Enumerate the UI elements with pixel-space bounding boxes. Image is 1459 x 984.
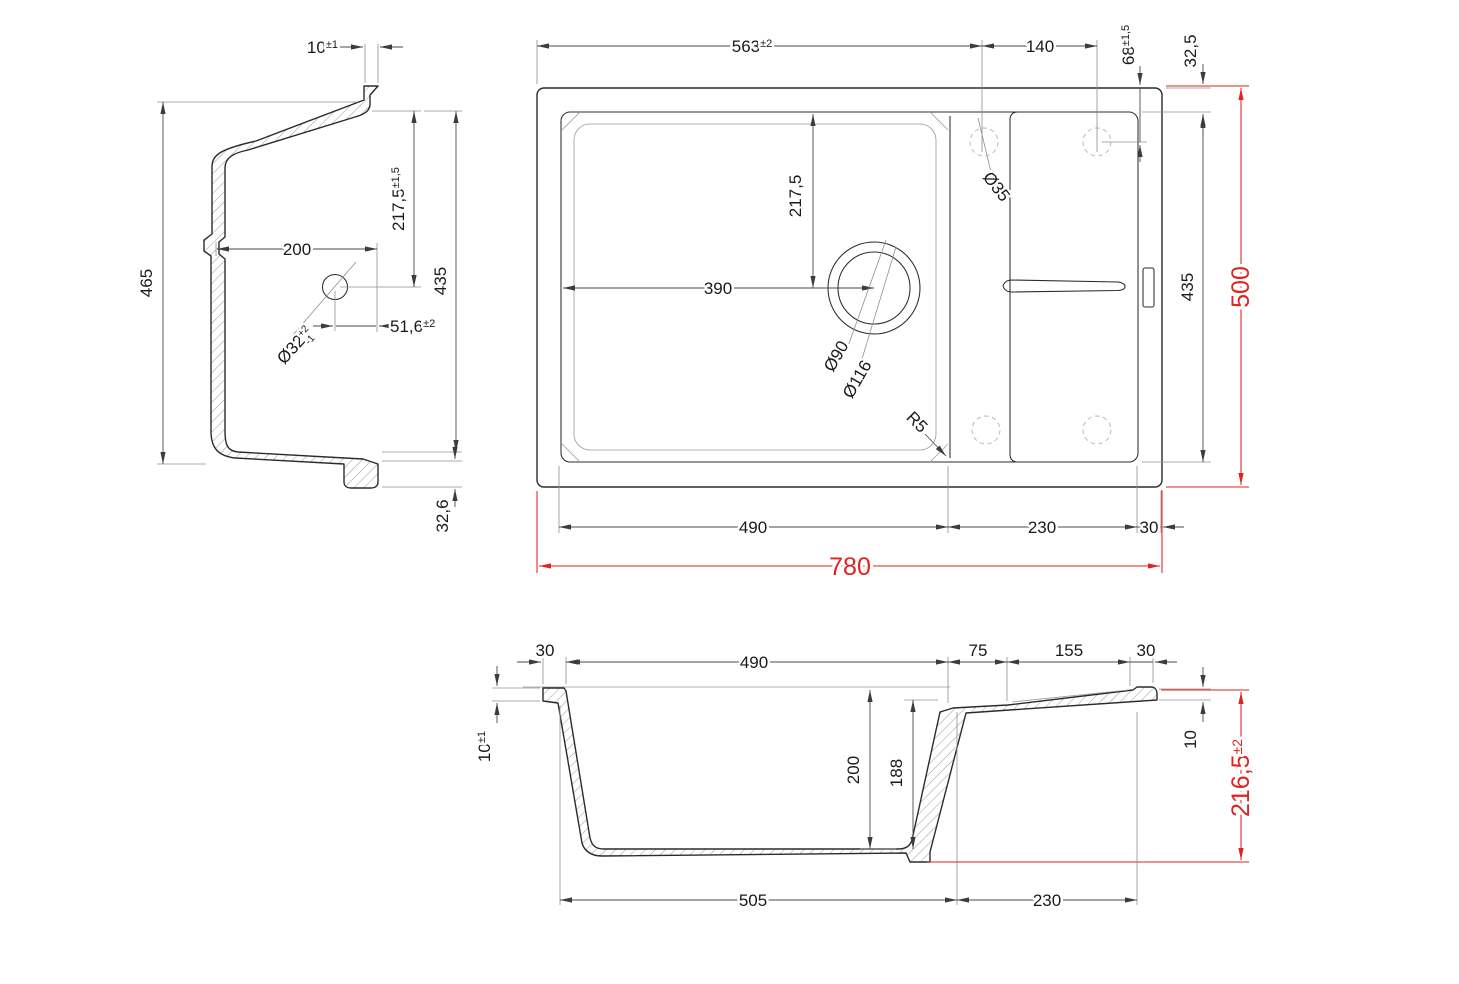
plan-tap-hole xyxy=(1083,416,1111,444)
dim-label: 51,6±2 xyxy=(390,317,435,336)
dim-front-overall-height: 216,5±2 xyxy=(927,690,1255,862)
dim-plan-tap-from-top: 68±1,5 xyxy=(1102,25,1147,162)
front-section-view: 30 490 75 155 30 10±1 xyxy=(475,641,1255,910)
dim-side-bowl-inner: 200 xyxy=(216,240,377,332)
dim-label: Ø35 xyxy=(979,168,1014,205)
dim-front-rim-height: 10±1 xyxy=(475,666,540,762)
dim-label: 563±2 xyxy=(732,37,773,56)
dim-label: 216,5±2 xyxy=(1227,739,1255,817)
dim-front-deck-thickness: 10 xyxy=(1159,667,1211,749)
dim-plan-overall-length: 780 xyxy=(537,490,1162,581)
dim-plan-rim-width-top: 32,5 xyxy=(1142,34,1211,136)
dim-label: 490 xyxy=(740,653,768,672)
dim-plan-drain-from-top: 217,5 xyxy=(786,114,813,288)
plan-overflow-slot xyxy=(1143,268,1154,307)
dim-label: 32,6 xyxy=(433,499,452,532)
dim-label: 230 xyxy=(1033,891,1061,910)
dim-front-bowl-outer-length: 505 xyxy=(560,706,957,910)
dim-label: 500 xyxy=(1227,266,1255,308)
dim-label: 30 xyxy=(1140,518,1159,537)
dim-label: 505 xyxy=(739,891,767,910)
dim-label: 75 xyxy=(969,641,988,660)
dim-label: 188 xyxy=(887,759,906,787)
dim-side-drain-center-depth: 217,5±1,5 xyxy=(340,111,421,287)
dim-plan-tap-hole-diameter: Ø35 xyxy=(978,118,1014,205)
dim-label: 217,5 xyxy=(786,175,805,218)
dim-label: 465 xyxy=(137,269,156,297)
dim-side-drain-hole-diameter: Ø32+2-1 xyxy=(273,322,320,370)
dim-front-rim-width-left: 30 xyxy=(517,641,590,684)
plan-bowl-corner-bevel xyxy=(930,444,948,462)
dim-front-rim-width-right: 30 xyxy=(1130,641,1177,683)
plan-bowl-corner-bevel xyxy=(562,444,580,462)
dim-side-rim-width: 10±1 xyxy=(307,38,403,83)
dim-plan-bowl-length: 490 xyxy=(559,466,948,537)
dim-plan-tap-from-left: 563±2 xyxy=(537,37,982,152)
dim-front-drainer-span: 230 xyxy=(957,712,1137,910)
plan-bowl-corner-bevel xyxy=(930,112,948,130)
plan-bowl-corner-bevel xyxy=(562,112,580,130)
plan-drainer-edge xyxy=(1010,112,1018,462)
drawing-canvas: 10±1 465 200 217,5±1,5 435 xyxy=(0,0,1459,984)
plan-view: 563±2 140 68±1,5 32,5 217,5 xyxy=(537,25,1255,581)
dim-front-bowl-opening: 490 xyxy=(566,653,948,703)
dim-label: Ø116 xyxy=(839,357,876,401)
dim-label: 140 xyxy=(1026,37,1054,56)
dim-label: 435 xyxy=(1178,273,1197,301)
dim-label: 10 xyxy=(1181,730,1200,749)
plan-rim-inner-edge xyxy=(561,112,1138,462)
dim-label: Ø32+2-1 xyxy=(273,322,320,370)
dim-label: 490 xyxy=(739,518,767,537)
dim-label: 68±1,5 xyxy=(1119,25,1138,65)
dim-label: 10±1 xyxy=(307,38,338,57)
dim-label: 230 xyxy=(1028,518,1056,537)
dim-label: 780 xyxy=(829,553,871,581)
plan-bowl-bottom-edge xyxy=(574,124,936,450)
technical-drawing: 10±1 465 200 217,5±1,5 435 xyxy=(0,0,1459,984)
dim-side-drain-center-offset: 51,6±2 xyxy=(313,291,435,336)
dim-side-inner-depth: 435 xyxy=(382,111,462,452)
dim-label: 30 xyxy=(1137,641,1156,660)
dim-label: Ø90 xyxy=(820,338,853,375)
dim-label: 30 xyxy=(536,641,555,660)
dim-plan-rim-width-right: 30 xyxy=(1137,491,1184,537)
dim-plan-drain-from-left: 390 xyxy=(563,279,874,298)
plan-outer-edge xyxy=(537,88,1162,487)
dim-plan-inner-width: 435 xyxy=(1142,114,1211,462)
plan-tap-hole xyxy=(972,416,1000,444)
dim-label: 200 xyxy=(844,756,863,784)
dim-label: 435 xyxy=(431,267,450,295)
dim-label: 10±1 xyxy=(475,731,494,762)
dim-label: 390 xyxy=(704,279,732,298)
dim-side-base-step: 32,6 xyxy=(382,441,462,533)
dim-plan-drainer-length: 230 xyxy=(948,466,1137,537)
dim-label: 200 xyxy=(283,240,311,259)
dim-plan-tap-spacing: 140 xyxy=(982,37,1097,152)
dim-label: R5 xyxy=(902,408,931,437)
dim-front-drainer-width: 155 xyxy=(1007,641,1130,686)
dim-label: 217,5±1,5 xyxy=(389,167,408,231)
dim-side-outer-depth: 465 xyxy=(137,102,358,464)
dim-label: 32,5 xyxy=(1181,34,1200,67)
dim-front-ledge-width: 75 xyxy=(948,641,1007,701)
dim-plan-corner-radius: R5 xyxy=(902,408,946,456)
side-section-view: 10±1 465 200 217,5±1,5 435 xyxy=(137,38,462,533)
plan-drainer-groove xyxy=(1003,280,1125,292)
dim-label: 155 xyxy=(1055,641,1083,660)
